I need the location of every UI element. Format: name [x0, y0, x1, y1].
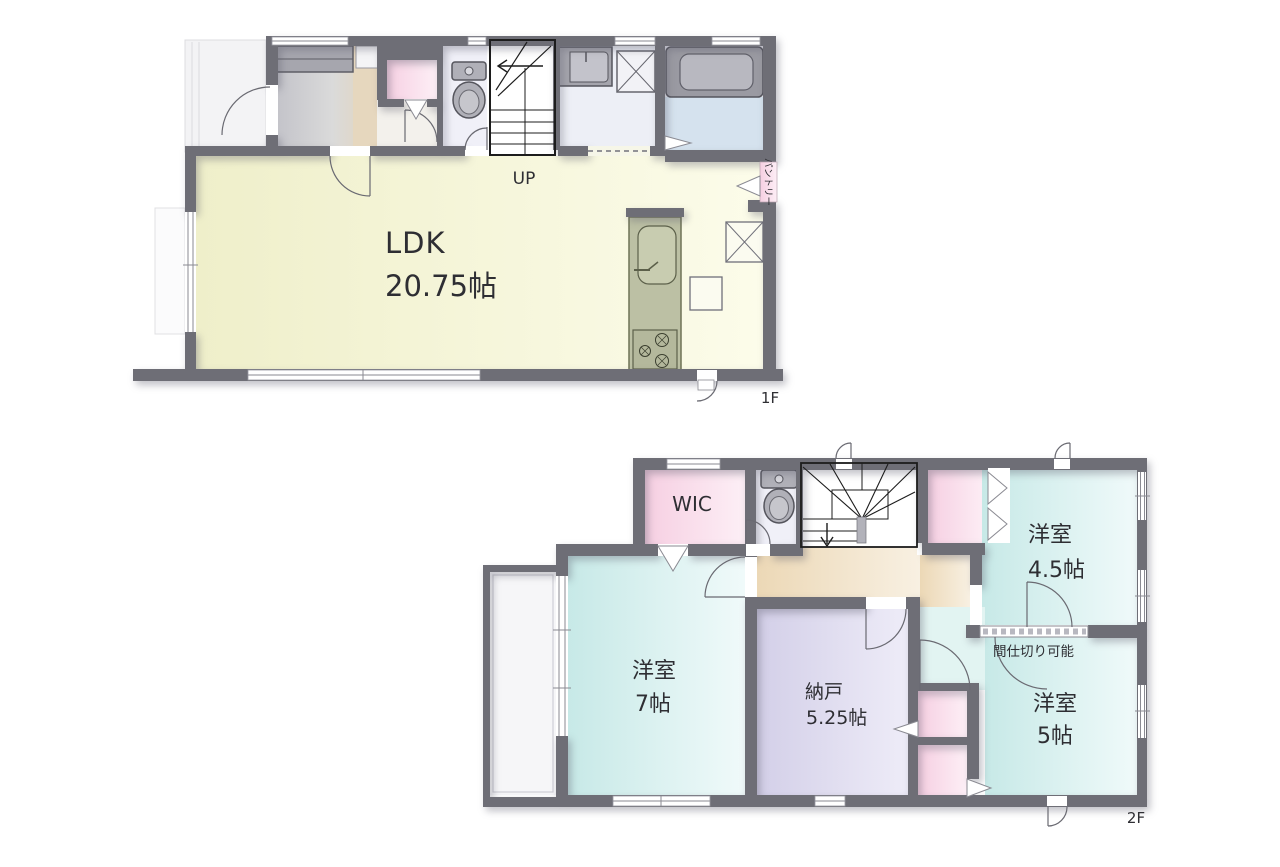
stove-icon	[633, 330, 677, 369]
closet-east	[928, 468, 988, 543]
partition-possible-wall	[980, 626, 1088, 637]
shoe-cabinet-icon	[276, 46, 353, 72]
bedroom45-door-opening	[970, 585, 982, 625]
closet-storage-side	[918, 691, 967, 737]
window-swing-arc	[1048, 807, 1067, 826]
window	[183, 212, 198, 332]
back-door-leaf	[698, 380, 714, 390]
stairs-1f	[490, 40, 555, 155]
door-opening	[330, 146, 370, 156]
bedroom45-size-label: 4.5帖	[1028, 558, 1085, 583]
window	[615, 37, 655, 45]
window	[272, 37, 348, 45]
floorplan-page: パントリー LDK 20	[0, 0, 1280, 867]
bedroom7-size-label: 7帖	[635, 692, 671, 717]
ldk-size-label: 20.75帖	[385, 269, 497, 303]
balcony	[490, 572, 556, 795]
floor2-plan: WIC 洋室 4.5帖 洋室 7帖 納戸 5.25帖 洋室 5帖 間仕切り可能 …	[483, 443, 1150, 827]
stairs-up-arrow-icon	[498, 60, 543, 72]
stairs-up-label: UP	[513, 169, 536, 189]
wic-label: WIC	[672, 492, 712, 516]
front-door-opening	[266, 85, 278, 135]
back-door-opening	[697, 370, 717, 381]
toilet-icon	[761, 470, 797, 523]
window	[815, 796, 845, 806]
room-bedroom-5	[985, 637, 1137, 797]
vanity-sink-icon	[559, 47, 612, 86]
window	[667, 459, 720, 469]
cupboard-space-icon	[690, 277, 722, 310]
window-opening	[1047, 796, 1067, 806]
ldk-label: LDK	[385, 226, 446, 260]
bedroom5-label: 洋室	[1033, 692, 1077, 717]
bedroom7-door-opening	[745, 557, 757, 597]
floorplan-canvas: パントリー LDK 20	[0, 0, 1280, 867]
washing-machine-pan-icon	[617, 51, 655, 92]
storage-door-opening	[866, 597, 906, 609]
stair-handrail	[857, 517, 866, 543]
window-swing-arc	[1055, 443, 1070, 458]
bedroom5-size-label: 5帖	[1037, 724, 1073, 749]
window-opening	[836, 459, 852, 469]
bedroom45-label: 洋室	[1028, 523, 1072, 548]
stairs-2f	[801, 463, 917, 547]
floor1-plan: パントリー LDK 20	[133, 36, 783, 407]
storage-size-label: 5.25帖	[806, 707, 867, 729]
hall-nook	[356, 46, 378, 68]
partition-note-label: 間仕切り可能	[993, 644, 1074, 660]
toilet-anteroom	[377, 100, 437, 152]
window	[613, 796, 710, 806]
window	[712, 37, 760, 45]
toilet-door-opening	[746, 544, 770, 556]
kitchen-counter	[629, 217, 681, 371]
terrace	[155, 208, 185, 334]
floor2-label: 2F	[1127, 809, 1145, 827]
window	[468, 37, 486, 45]
closet-bedroom5-side	[918, 745, 967, 797]
hall-closet	[385, 60, 437, 99]
storage-label: 納戸	[805, 681, 843, 703]
kitchen-sink-icon	[634, 226, 676, 284]
floor1-label: 1F	[761, 389, 779, 407]
entrance-porch	[185, 40, 266, 152]
refrigerator-space-icon	[726, 222, 763, 262]
door-opening	[465, 146, 487, 156]
stairs-down-arrow-icon	[821, 523, 833, 546]
hallway-2f-east	[920, 555, 970, 607]
window-swing-arc	[836, 443, 851, 458]
pantry-label: パントリー	[762, 158, 773, 206]
window-opening	[1054, 459, 1070, 469]
window	[248, 370, 480, 380]
toilet-icon	[452, 62, 486, 118]
bathtub-icon	[666, 47, 763, 97]
bedroom7-label: 洋室	[632, 659, 676, 684]
